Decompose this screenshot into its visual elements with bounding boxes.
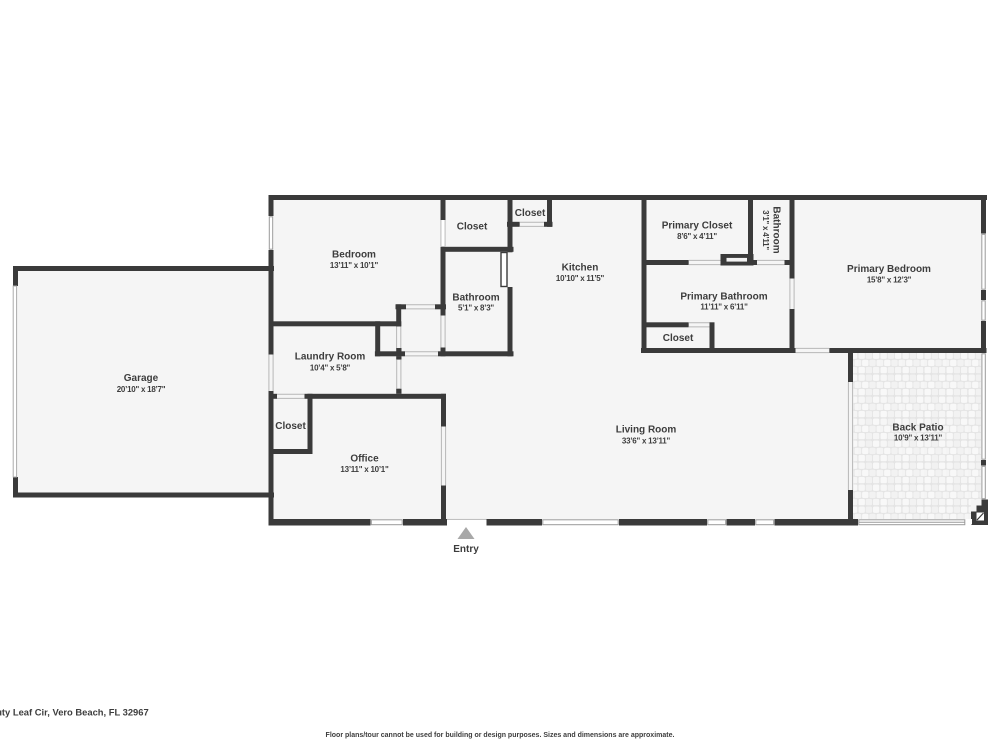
svg-text:15’8" x 12’3": 15’8" x 12’3"	[867, 276, 912, 285]
svg-text:Bathroom: Bathroom	[771, 206, 782, 253]
svg-text:Bedroom: Bedroom	[332, 250, 376, 261]
svg-text:Primary Closet: Primary Closet	[662, 221, 733, 232]
svg-text:10’10" x 11’5": 10’10" x 11’5"	[556, 274, 605, 283]
svg-text:5’1" x 8’3": 5’1" x 8’3"	[458, 304, 494, 313]
svg-text:Kitchen: Kitchen	[562, 263, 599, 274]
svg-text:33’6" x 13’11": 33’6" x 13’11"	[622, 437, 671, 446]
svg-text:Primary Bedroom: Primary Bedroom	[847, 264, 931, 275]
svg-text:Garage: Garage	[124, 373, 159, 384]
svg-text:10’4" x 5’8": 10’4" x 5’8"	[310, 364, 351, 373]
svg-text:8’6" x 4’11": 8’6" x 4’11"	[677, 232, 717, 241]
svg-text:Living Room: Living Room	[616, 425, 677, 436]
svg-text:Office: Office	[350, 454, 379, 465]
svg-text:Laundry Room: Laundry Room	[295, 352, 366, 363]
svg-text:Closet: Closet	[515, 208, 546, 219]
svg-text:3’1" x 4’11": 3’1" x 4’11"	[761, 210, 770, 250]
svg-text:Beauty Leaf Cir, Vero Beach, F: Beauty Leaf Cir, Vero Beach, FL 32967	[0, 707, 149, 718]
svg-text:13’11" x 10’1": 13’11" x 10’1"	[340, 465, 389, 474]
svg-text:Closet: Closet	[457, 222, 488, 233]
svg-text:13’11" x 10’1": 13’11" x 10’1"	[330, 261, 379, 270]
svg-text:11’11" x 6’11": 11’11" x 6’11"	[700, 303, 748, 312]
svg-text:10’9" x 13’11": 10’9" x 13’11"	[894, 434, 943, 443]
svg-text:Bathroom: Bathroom	[452, 293, 499, 304]
svg-text:Entry: Entry	[453, 544, 479, 555]
svg-text:Primary Bathroom: Primary Bathroom	[680, 292, 767, 303]
svg-text:Floor plans/tour cannot be use: Floor plans/tour cannot be used for buil…	[326, 732, 675, 739]
svg-text:Closet: Closet	[663, 333, 694, 344]
svg-text:Closet: Closet	[275, 421, 306, 432]
svg-text:Back Patio: Back Patio	[892, 423, 943, 434]
svg-text:20’10" x 18’7": 20’10" x 18’7"	[117, 385, 166, 394]
